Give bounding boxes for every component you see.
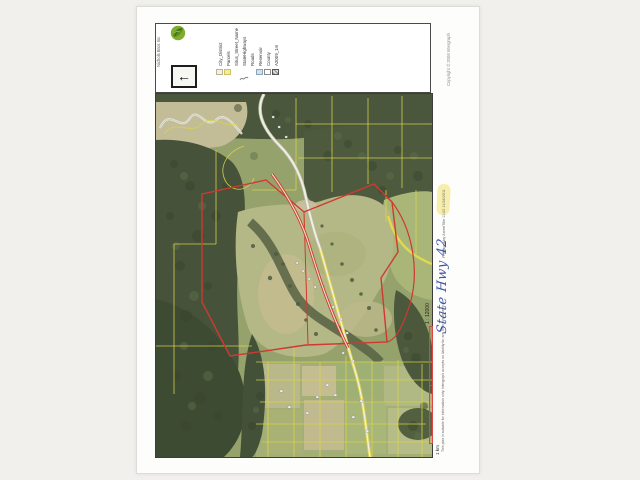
scale-bar-tick <box>429 385 433 386</box>
legend-item-parcels: Parcels <box>226 51 231 66</box>
legend-item-statehighways: StateHighways <box>242 37 247 66</box>
company-logo-icon <box>170 25 186 41</box>
swatch-city-district <box>216 69 223 75</box>
copyright-text: Copyright © 2008 Intergraph <box>447 33 452 86</box>
swatch-aerial-raster <box>272 69 279 75</box>
client-name-label: Nichols Bros Inc <box>157 37 162 67</box>
legend-item-roads: Roads <box>250 53 255 66</box>
scale-bar <box>429 326 433 444</box>
north-arrow-icon: ← <box>177 68 191 84</box>
legend-item-situs-street-name: Situs_Street_Name <box>234 28 239 66</box>
legend-item-reservoir: Reservoir <box>258 47 263 66</box>
north-arrow-box: ← <box>171 65 197 88</box>
legend-item-city-district: City_District <box>218 43 223 66</box>
map-scale-ratio: 1 : 12000 <box>426 303 432 324</box>
scale-bar-label: 1 km <box>435 445 440 455</box>
swatch-reservoir <box>256 69 263 75</box>
swatch-county <box>264 69 271 75</box>
aerial-parcel-map <box>155 93 433 458</box>
legend-item-county: County <box>266 52 271 66</box>
scanned-map-page: Nichols Bros Inc ← City_District Parcels… <box>0 0 640 480</box>
disclaimer-text: This plan is suitable for information on… <box>441 352 446 452</box>
swatch-parcels <box>224 69 231 75</box>
legend-item-aerial-2009: A2009_1m <box>274 45 279 66</box>
swatch-statehighways-line-icon <box>239 69 249 76</box>
